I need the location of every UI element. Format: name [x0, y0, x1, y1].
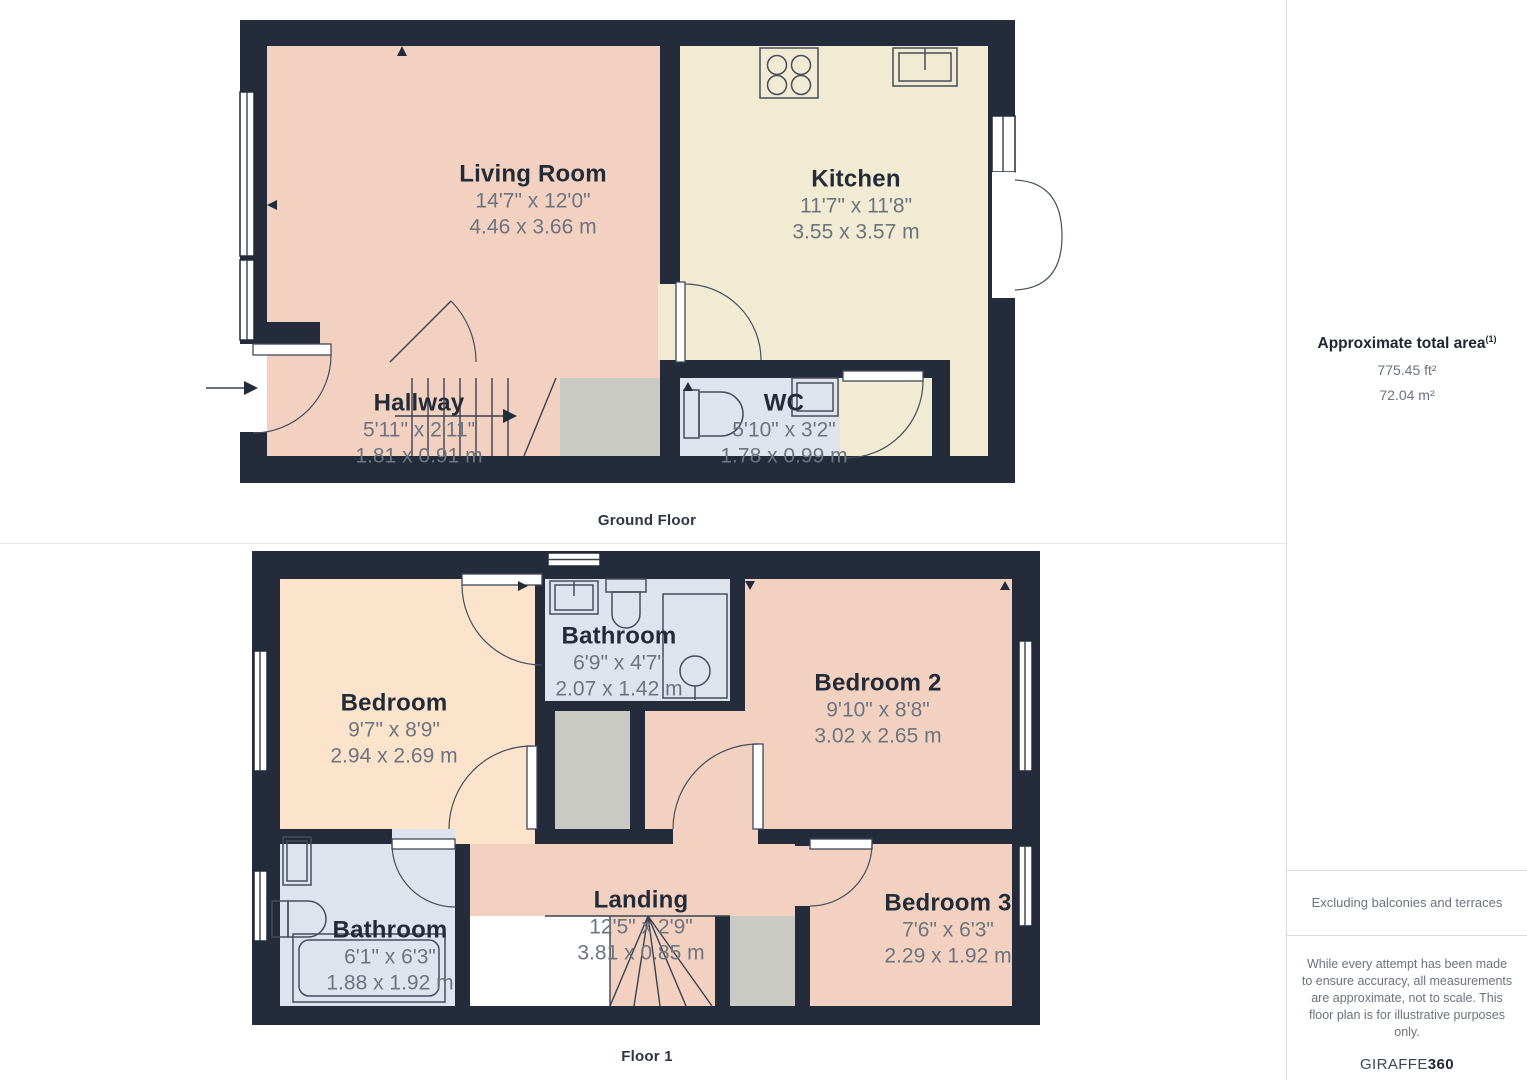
bedroom-3-floor [810, 844, 1012, 1006]
stair-wall [715, 916, 730, 1006]
window [240, 260, 254, 340]
footnote-marker: (1) [1485, 334, 1496, 344]
stair-top-floor [730, 916, 795, 1006]
stairwell-floor [555, 711, 630, 829]
stair-landing-floor [560, 378, 660, 456]
bedroom-3-door-threshold [795, 846, 810, 906]
total-area-section: Approximate total area(1) 775.45 ft² 72.… [1287, 0, 1527, 871]
disclaimer-text: While every attempt has been made to ens… [1301, 956, 1513, 1041]
wall-stub [267, 322, 320, 346]
window [254, 651, 267, 771]
exclusion-note: Excluding balconies and terraces [1312, 895, 1503, 910]
bedroom-2-floor [745, 579, 1012, 829]
bedroom-2-door-threshold [673, 829, 758, 844]
kitchen-floor-strip [950, 360, 988, 456]
ground-floor-plan [0, 0, 1286, 543]
bedroom-2-entry-floor [645, 711, 745, 829]
brand-number: 360 [1428, 1056, 1454, 1073]
exclusion-section: Excluding balconies and terraces [1287, 870, 1527, 936]
info-sidebar: Approximate total area(1) 775.45 ft² 72.… [1286, 0, 1527, 1080]
bedroom-floor [280, 579, 535, 829]
floor-1-plan [0, 544, 1286, 1080]
french-doors [992, 172, 1062, 298]
window [240, 92, 254, 256]
window [548, 553, 600, 566]
bedroom-door-threshold [452, 829, 535, 844]
wc-lobby-floor [840, 378, 932, 456]
disclaimer-section: While every attempt has been made to ens… [1287, 935, 1527, 1080]
window [254, 871, 267, 941]
brand-name: GIRAFFE [1360, 1056, 1428, 1073]
bathroom-floor [545, 579, 730, 701]
total-area-block: Approximate total area(1) 775.45 ft² 72.… [1287, 334, 1527, 403]
floor-caption-1: Floor 1 [621, 1048, 672, 1065]
total-area-m: 72.04 m² [1287, 387, 1527, 403]
wc-floor [680, 378, 840, 456]
stair-void [470, 916, 610, 1006]
total-area-ft: 775.45 ft² [1287, 362, 1527, 378]
window [1019, 846, 1032, 926]
floorplan-panels: Living Room 14'7" x 12'0" 4.46 x 3.66 m … [0, 0, 1286, 1080]
kitchen-floor [680, 46, 988, 360]
floor-caption-ground: Ground Floor [598, 512, 696, 529]
window [1019, 641, 1032, 771]
ground-floor-panel: Living Room 14'7" x 12'0" 4.46 x 3.66 m … [0, 0, 1286, 543]
giraffe360-logo: GIRAFFE360 [1287, 1056, 1527, 1073]
window [992, 116, 1015, 172]
floor-1-panel: Bedroom 9'7" x 8'9" 2.94 x 2.69 m Bathro… [0, 543, 1286, 1080]
total-area-title: Approximate total area(1) [1287, 334, 1527, 353]
floorplan-page: Living Room 14'7" x 12'0" 4.46 x 3.66 m … [0, 0, 1527, 1080]
